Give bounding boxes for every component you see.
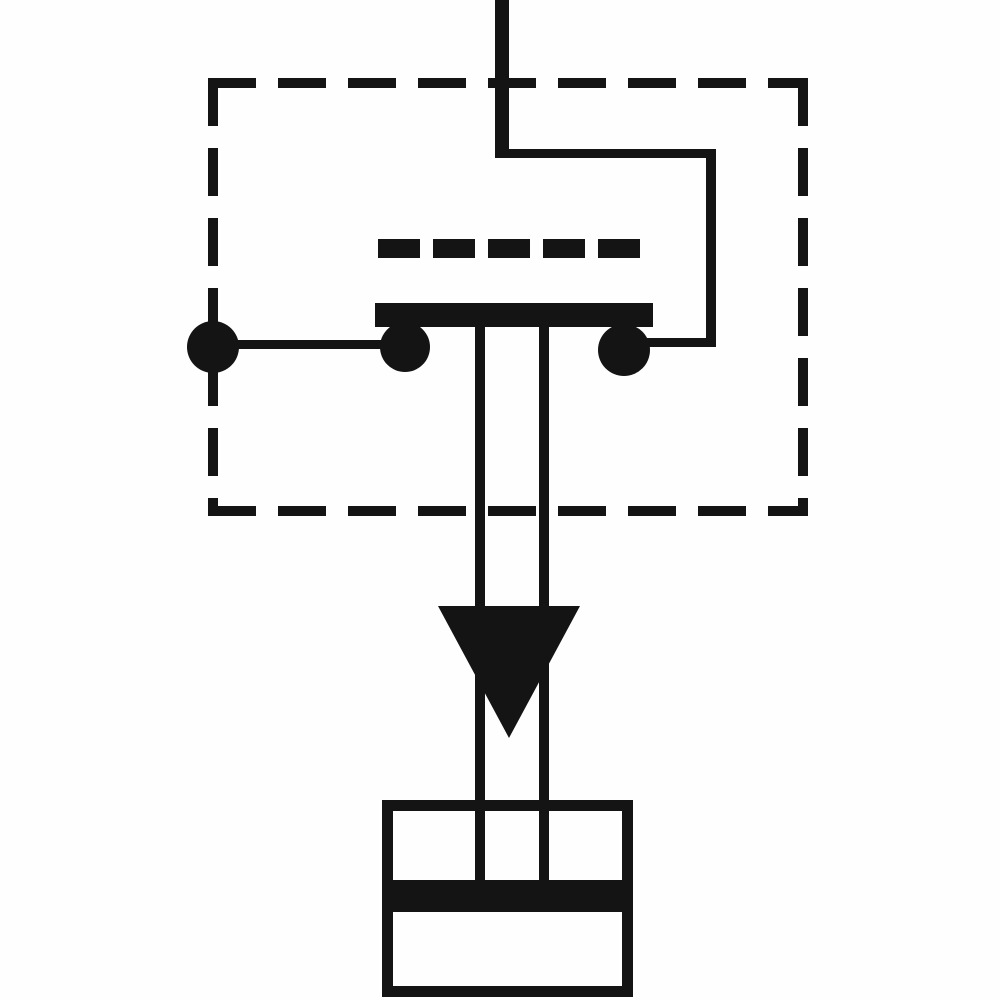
pressure-arrow xyxy=(438,606,580,738)
plunger-stem-right xyxy=(539,326,549,882)
enclosure-dashed-box-left-edge xyxy=(208,78,218,516)
supply-line-vertical xyxy=(495,0,509,158)
diagram-canvas xyxy=(0,0,1000,1000)
supply-wire-horizontal xyxy=(497,149,716,158)
left-terminal-dot xyxy=(187,321,239,373)
left-contact-dot xyxy=(380,322,430,372)
enclosure-dashed-box-bottom-edge xyxy=(208,506,808,516)
contact-bridge-bar xyxy=(375,303,653,327)
enclosure-dashed-box-right-edge xyxy=(798,78,808,516)
right-drop-wire xyxy=(706,149,716,347)
piston-band xyxy=(382,880,633,912)
right-contact-feed-wire xyxy=(640,338,716,347)
left-terminal-wire xyxy=(213,340,405,349)
contact-actuator-dashed-line xyxy=(378,239,650,258)
right-contact-dot xyxy=(598,324,650,376)
plunger-stem-left xyxy=(475,326,485,882)
